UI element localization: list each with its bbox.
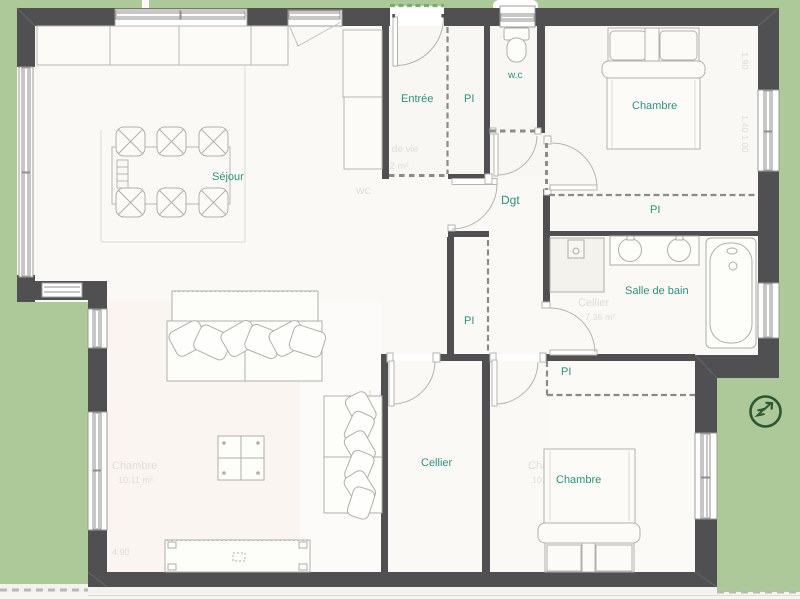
svg-text:1.40 1.00: 1.40 1.00: [740, 115, 750, 153]
svg-text:PI: PI: [464, 93, 474, 105]
svg-text:Dgt: Dgt: [501, 193, 520, 207]
svg-text:w.c: w.c: [507, 70, 522, 81]
svg-text:4.90: 4.90: [112, 547, 130, 557]
svg-text:Chambre: Chambre: [556, 474, 601, 486]
svg-text:PI: PI: [561, 366, 571, 378]
svg-text:Chambre: Chambre: [632, 100, 677, 112]
svg-text:Cellier: Cellier: [578, 297, 610, 309]
svg-text:7.36 m²: 7.36 m²: [585, 312, 616, 322]
svg-text:WC: WC: [356, 186, 371, 196]
svg-text:Séjour: Séjour: [212, 171, 244, 183]
svg-text:Entrée: Entrée: [401, 93, 433, 105]
svg-text:Salle de bain: Salle de bain: [625, 285, 689, 297]
svg-text:10.11 m²: 10.11 m²: [118, 475, 153, 485]
svg-text:1.90: 1.90: [740, 52, 750, 70]
svg-text:PI: PI: [650, 204, 660, 216]
svg-text:Chambre: Chambre: [112, 460, 157, 472]
svg-text:Cellier: Cellier: [421, 457, 453, 469]
svg-text:PI: PI: [464, 315, 474, 327]
